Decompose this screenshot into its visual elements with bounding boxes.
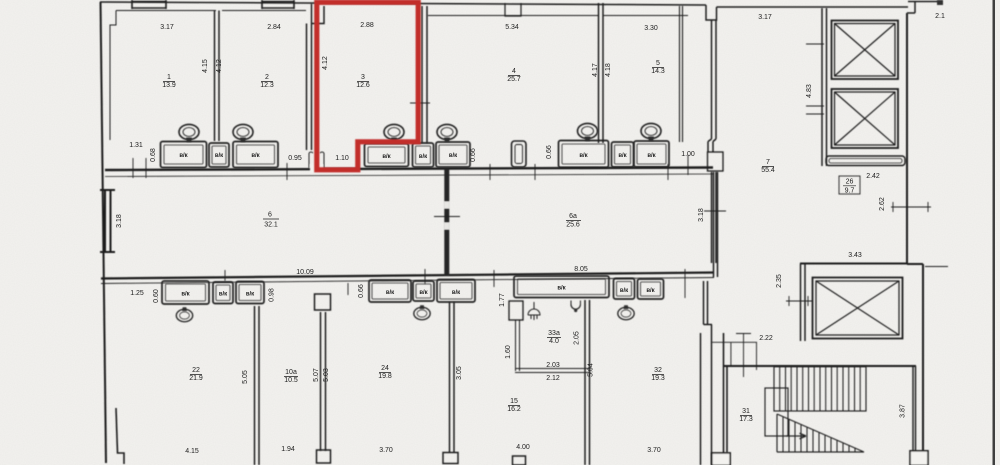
svg-text:12.3: 12.3 — [260, 82, 274, 89]
svg-text:2.84: 2.84 — [267, 24, 281, 31]
svg-text:2.42: 2.42 — [866, 173, 880, 180]
svg-text:в/к: в/к — [419, 290, 427, 296]
svg-text:3.87: 3.87 — [900, 404, 907, 418]
svg-text:3.17: 3.17 — [758, 14, 772, 21]
svg-text:4.18: 4.18 — [605, 63, 612, 77]
svg-text:5.07: 5.07 — [313, 368, 320, 382]
svg-text:2.62: 2.62 — [879, 197, 886, 211]
svg-text:в/к: в/к — [646, 288, 654, 294]
svg-text:10.5: 10.5 — [284, 377, 298, 384]
svg-text:в/к: в/к — [179, 153, 187, 159]
svg-text:19.3: 19.3 — [651, 375, 665, 382]
svg-text:4.17: 4.17 — [592, 63, 599, 77]
svg-text:1.00: 1.00 — [681, 151, 695, 158]
svg-text:26: 26 — [846, 179, 854, 186]
svg-text:1.60: 1.60 — [505, 345, 512, 359]
svg-text:14.3: 14.3 — [651, 68, 665, 75]
svg-text:в/к: в/к — [215, 153, 223, 159]
svg-text:в/к: в/к — [181, 292, 189, 298]
svg-text:2.22: 2.22 — [759, 335, 773, 342]
svg-text:55.4: 55.4 — [761, 167, 775, 174]
svg-text:19.8: 19.8 — [378, 373, 392, 380]
svg-text:31: 31 — [742, 408, 750, 415]
svg-text:0.66: 0.66 — [546, 145, 553, 159]
svg-text:в/к: в/к — [246, 292, 254, 298]
svg-text:13.9: 13.9 — [162, 82, 176, 89]
svg-text:21.9: 21.9 — [189, 375, 203, 382]
svg-text:3.17: 3.17 — [160, 24, 174, 31]
svg-text:в/к: в/к — [419, 154, 427, 160]
svg-text:0.98: 0.98 — [269, 288, 276, 302]
svg-text:3.70: 3.70 — [647, 447, 661, 454]
svg-text:2.1: 2.1 — [935, 13, 945, 20]
svg-text:в/к: в/к — [382, 154, 390, 160]
svg-text:2.05: 2.05 — [574, 331, 581, 345]
svg-text:1.10: 1.10 — [335, 155, 349, 162]
svg-text:в/к: в/к — [557, 286, 565, 292]
svg-text:2.88: 2.88 — [360, 22, 374, 29]
svg-text:в/к: в/к — [647, 153, 655, 159]
svg-text:0.66: 0.66 — [358, 284, 365, 298]
svg-text:3.18: 3.18 — [698, 208, 705, 222]
svg-text:5.03: 5.03 — [323, 368, 330, 382]
svg-text:4.12: 4.12 — [322, 56, 329, 70]
svg-text:в/к: в/к — [620, 288, 628, 294]
svg-text:6: 6 — [268, 212, 272, 219]
svg-text:5.04: 5.04 — [588, 363, 595, 377]
svg-text:4.12: 4.12 — [216, 59, 223, 73]
svg-text:10.09: 10.09 — [296, 269, 314, 276]
svg-text:25.6: 25.6 — [566, 222, 580, 229]
svg-text:0.68: 0.68 — [150, 148, 157, 162]
svg-text:4.0: 4.0 — [549, 338, 559, 345]
svg-text:16.2: 16.2 — [507, 406, 521, 413]
svg-text:в/к: в/к — [386, 290, 394, 296]
svg-text:5.34: 5.34 — [505, 24, 519, 31]
svg-text:в/к: в/к — [452, 290, 460, 296]
svg-text:4.83: 4.83 — [806, 84, 813, 98]
svg-text:3.18: 3.18 — [116, 214, 123, 228]
svg-text:4.00: 4.00 — [516, 444, 530, 451]
svg-text:4.15: 4.15 — [202, 59, 209, 73]
svg-text:12.6: 12.6 — [356, 82, 370, 89]
svg-text:3: 3 — [361, 74, 365, 81]
svg-text:8.05: 8.05 — [574, 266, 588, 273]
svg-text:в/к: в/к — [449, 153, 457, 159]
svg-text:32: 32 — [654, 367, 662, 374]
svg-text:3.05: 3.05 — [456, 366, 463, 380]
svg-text:в/к: в/к — [579, 153, 587, 159]
svg-text:0.66: 0.66 — [470, 148, 477, 162]
svg-text:3.70: 3.70 — [379, 447, 393, 454]
svg-text:в/к: в/к — [618, 153, 626, 159]
svg-text:17.3: 17.3 — [739, 416, 753, 423]
svg-text:22: 22 — [192, 367, 200, 374]
svg-text:3.30: 3.30 — [644, 25, 658, 32]
svg-text:33а: 33а — [548, 330, 560, 337]
svg-text:9.7: 9.7 — [845, 188, 855, 195]
svg-text:5.05: 5.05 — [242, 370, 249, 384]
svg-text:в/к: в/к — [251, 153, 259, 159]
svg-text:6а: 6а — [569, 213, 577, 220]
svg-text:1.94: 1.94 — [281, 446, 295, 453]
svg-text:2.35: 2.35 — [776, 274, 783, 288]
svg-text:1.77: 1.77 — [499, 293, 506, 307]
svg-text:10а: 10а — [285, 369, 297, 376]
svg-text:1.31: 1.31 — [129, 142, 143, 149]
svg-text:32.1: 32.1 — [264, 222, 278, 229]
svg-text:3.43: 3.43 — [848, 252, 862, 259]
svg-text:в/к: в/к — [219, 292, 227, 298]
svg-text:1: 1 — [167, 74, 171, 81]
svg-text:1.25: 1.25 — [130, 290, 144, 297]
svg-text:24: 24 — [381, 365, 389, 372]
svg-text:4: 4 — [512, 68, 516, 75]
svg-text:0.95: 0.95 — [288, 155, 302, 162]
svg-text:2: 2 — [265, 74, 269, 81]
svg-text:2.03: 2.03 — [546, 362, 560, 369]
svg-text:4.15: 4.15 — [185, 448, 199, 455]
svg-text:25.7: 25.7 — [507, 76, 521, 83]
svg-text:2.12: 2.12 — [546, 375, 560, 382]
svg-text:7: 7 — [766, 159, 770, 166]
svg-text:0.60: 0.60 — [153, 289, 160, 303]
svg-text:15: 15 — [510, 398, 518, 405]
svg-text:5: 5 — [656, 60, 660, 67]
